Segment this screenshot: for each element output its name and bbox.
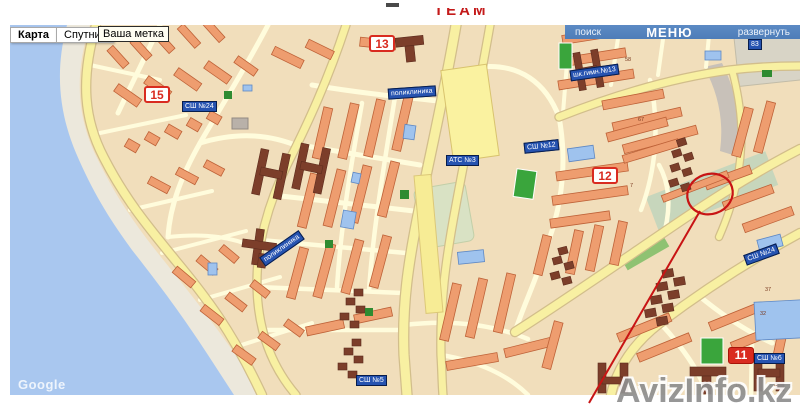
- expand-menu-item[interactable]: развернуть: [738, 27, 790, 38]
- svg-text:67: 67: [638, 117, 644, 123]
- svg-text:37: 37: [765, 287, 771, 293]
- map-button[interactable]: Карта: [10, 27, 56, 43]
- district-marker-12[interactable]: 12: [592, 167, 618, 184]
- place-label-ats3: АТС №3: [446, 155, 479, 166]
- district-marker-11[interactable]: 11: [728, 347, 754, 364]
- district-marker-15[interactable]: 15: [144, 86, 170, 103]
- place-label-83: 83: [748, 39, 762, 50]
- menu-title[interactable]: МЕНЮ: [646, 25, 692, 40]
- clipped-logo-mark: [386, 3, 399, 7]
- place-label-school24: СШ №24: [182, 101, 217, 112]
- map-canvas[interactable]: 58 67 7 37 32 14 13 Карта Спутник Ваша м…: [10, 25, 800, 395]
- svg-text:32: 32: [760, 311, 766, 317]
- clipped-logo-text: ТЕАМ: [434, 8, 504, 20]
- page: ТЕАМ: [0, 0, 800, 412]
- menu-bar: поиск МЕНЮ развернуть: [565, 25, 800, 39]
- place-label-school6: СШ №6: [754, 353, 785, 364]
- place-label-school5: СШ №5: [356, 375, 387, 386]
- district-marker-13[interactable]: 13: [369, 35, 395, 52]
- search-menu-item[interactable]: поиск: [575, 27, 601, 38]
- your-mark-label: Ваша метка: [98, 26, 169, 42]
- svg-text:58: 58: [625, 57, 631, 63]
- svg-text:7: 7: [630, 183, 633, 189]
- google-watermark: Google: [18, 377, 66, 392]
- site-watermark: AvizInfo.kz: [616, 372, 792, 411]
- map-graphics: 58 67 7 37 32 14 13: [10, 25, 800, 395]
